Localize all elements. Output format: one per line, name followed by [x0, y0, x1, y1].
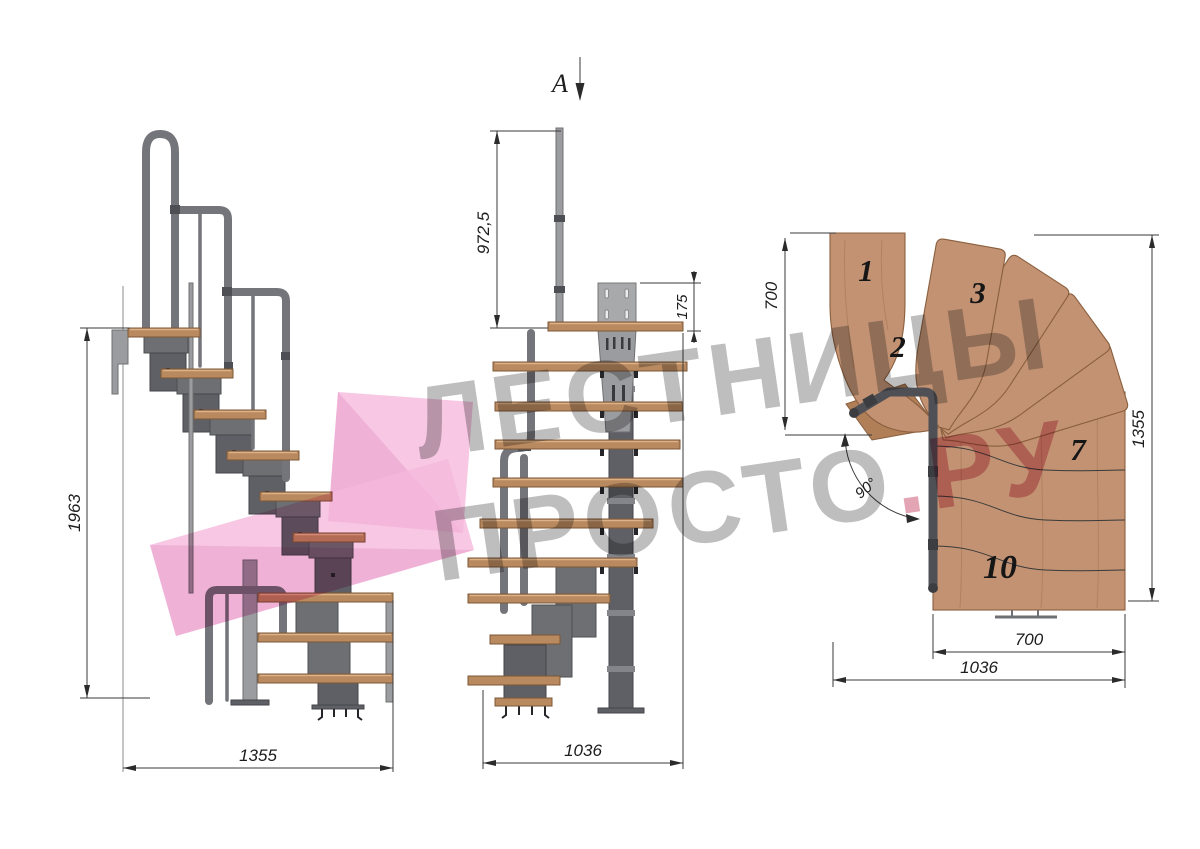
tread [227, 451, 299, 460]
flight-width-dimension: 700 [1015, 630, 1044, 649]
rail-joint [928, 539, 938, 550]
column-foot [598, 708, 644, 713]
staircase-technical-drawing: 1963 1355 A [0, 0, 1200, 849]
side-width-dimension: 1355 [239, 746, 277, 765]
wall-bracket [112, 330, 128, 394]
anchor-bolts [318, 709, 362, 720]
tread [495, 698, 552, 706]
handrail-upright [556, 128, 563, 331]
plan-total-width-dimension: 1036 [960, 658, 998, 677]
newel-post [386, 595, 393, 702]
drawing-canvas: 1963 1355 A [0, 0, 1200, 849]
tread [194, 410, 266, 419]
tread [128, 328, 200, 337]
handrail-loop [146, 134, 175, 331]
column-foot [312, 705, 364, 709]
bracket-height-dimension: 175 [674, 294, 691, 320]
section-letter: A [550, 69, 568, 98]
tread-wide [258, 674, 393, 683]
side-height-dimension: 1963 [65, 494, 84, 532]
landing-depth-dimension: 700 [762, 281, 781, 310]
section-marker: A [550, 57, 584, 101]
anchor-bolts [502, 706, 549, 718]
post-foot [231, 700, 269, 705]
tread-wide [258, 633, 393, 642]
front-width-dimension: 1036 [564, 741, 602, 760]
tread [161, 369, 233, 378]
plan-length-dimension: 1355 [1129, 410, 1148, 448]
tread-number-7: 7 [1070, 432, 1087, 467]
tread-number-1: 1 [858, 253, 874, 288]
tread [468, 676, 560, 685]
tread [490, 635, 560, 644]
plan-foot-plate [995, 610, 1057, 617]
tread-number-10: 10 [983, 549, 1017, 586]
handrail-height-dimension: 972,5 [474, 211, 493, 254]
section-arrow-icon [576, 83, 585, 101]
